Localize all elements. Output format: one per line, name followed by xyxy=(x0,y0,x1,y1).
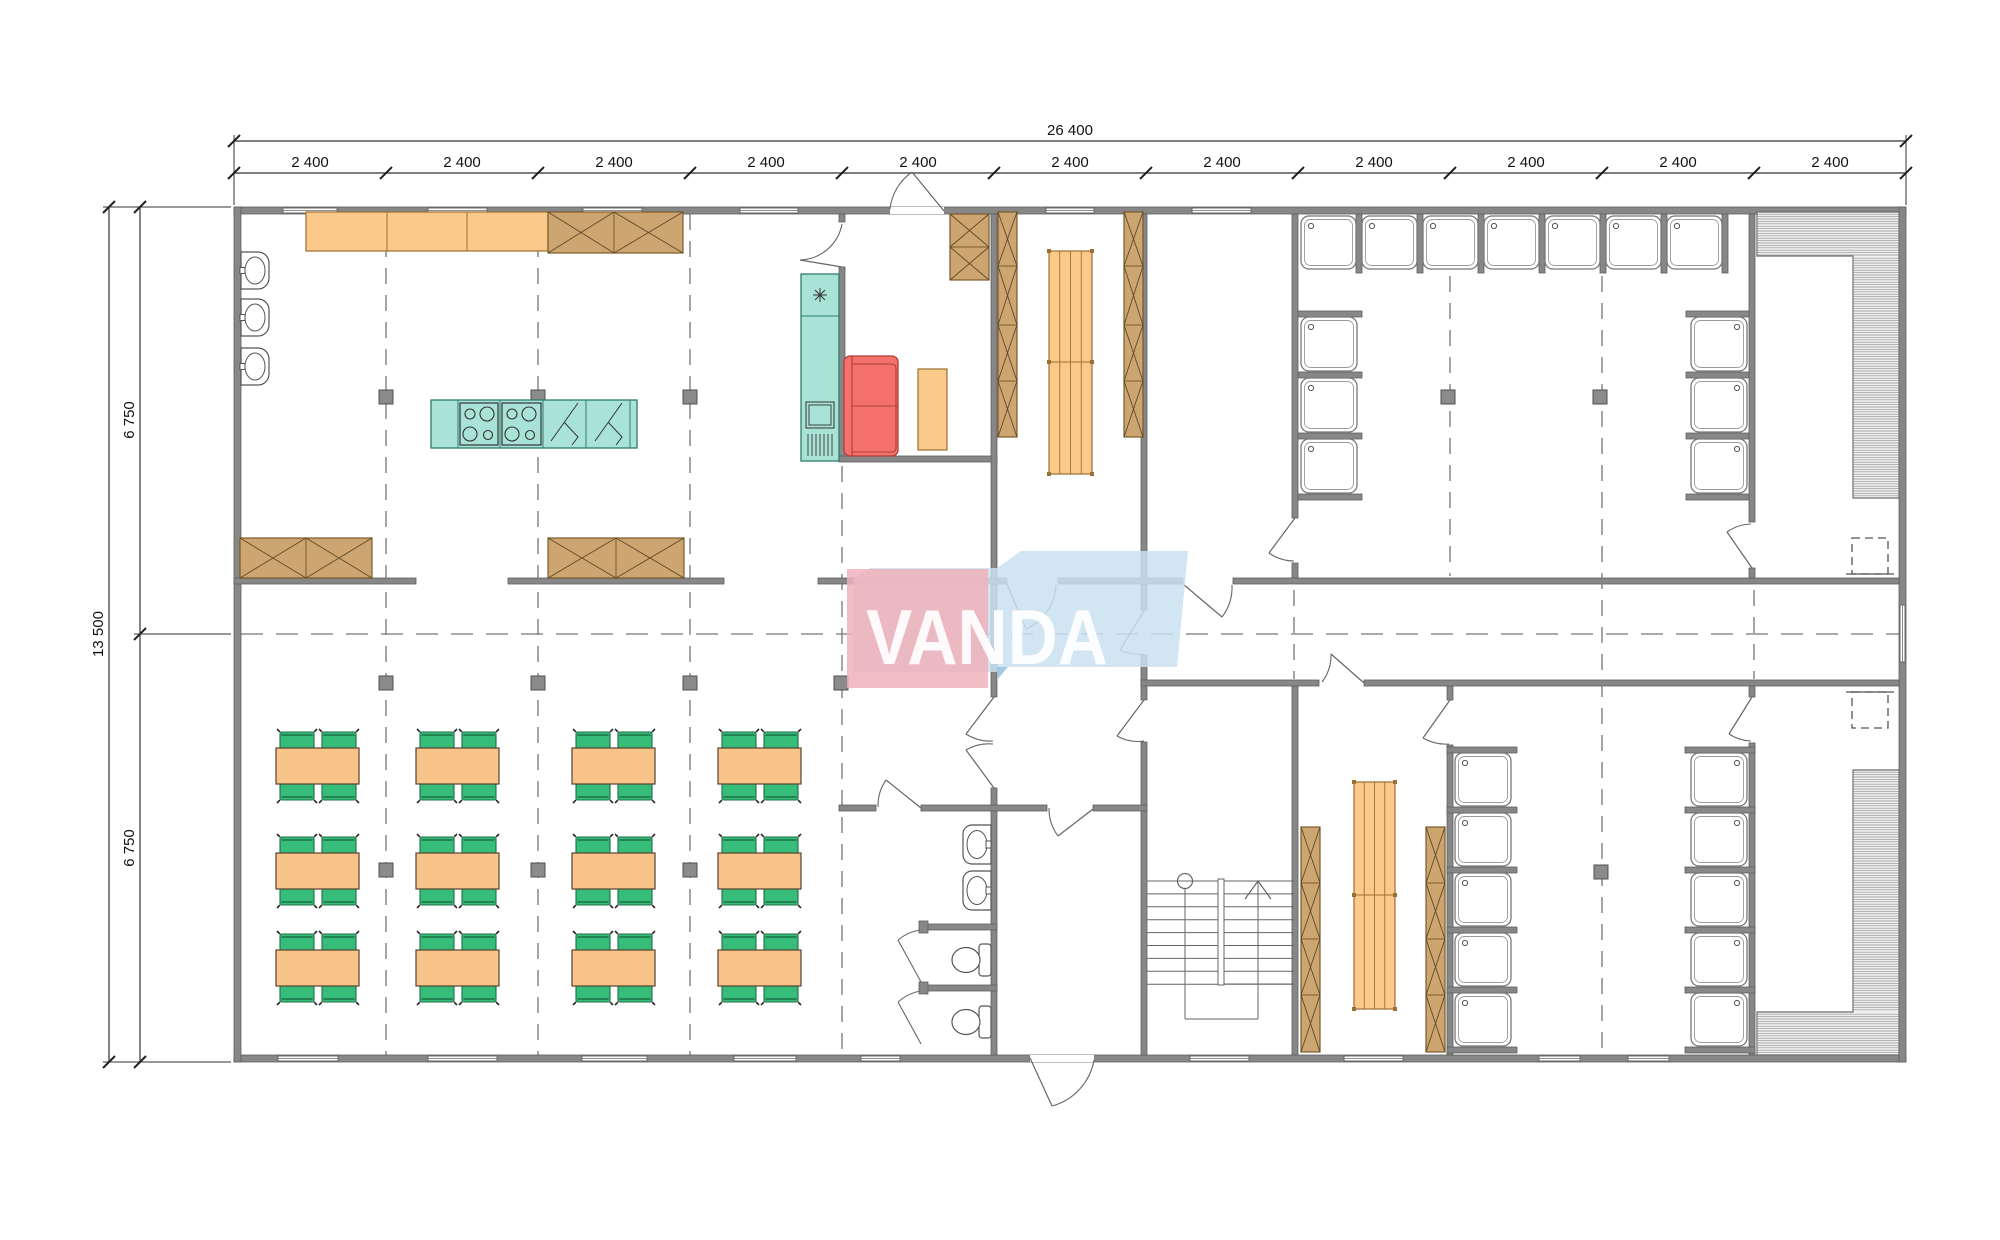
svg-text:2 400: 2 400 xyxy=(291,154,329,171)
svg-text:2 400: 2 400 xyxy=(1811,154,1849,171)
svg-text:6 750: 6 750 xyxy=(121,401,138,439)
svg-text:2 400: 2 400 xyxy=(1051,154,1089,171)
svg-text:13 500: 13 500 xyxy=(90,611,107,657)
svg-text:2 400: 2 400 xyxy=(1203,154,1241,171)
svg-text:2 400: 2 400 xyxy=(1659,154,1697,171)
svg-text:6 750: 6 750 xyxy=(121,829,138,867)
svg-text:2 400: 2 400 xyxy=(443,154,481,171)
svg-text:2 400: 2 400 xyxy=(747,154,785,171)
svg-text:VANDA: VANDA xyxy=(866,593,1108,681)
svg-text:2 400: 2 400 xyxy=(595,154,633,171)
svg-text:2 400: 2 400 xyxy=(1507,154,1545,171)
svg-text:26 400: 26 400 xyxy=(1047,122,1093,139)
svg-text:2 400: 2 400 xyxy=(899,154,937,171)
svg-text:2 400: 2 400 xyxy=(1355,154,1393,171)
